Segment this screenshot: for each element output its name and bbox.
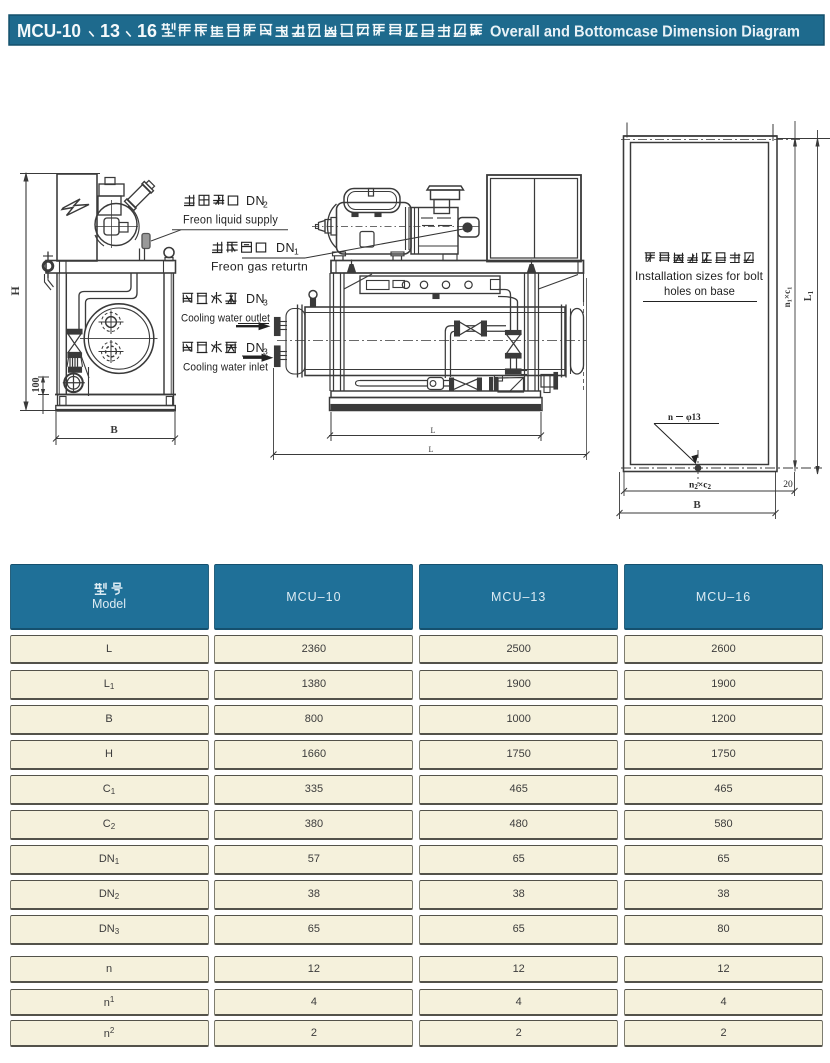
svg-text:Cooling water inlet: Cooling water inlet [183, 362, 268, 374]
svg-text:3: 3 [263, 298, 268, 308]
svg-text:Installation sizes for bolt: Installation sizes for bolt [635, 269, 764, 283]
svg-text:H: H [8, 286, 22, 296]
svg-text:MCU-10: MCU-10 [17, 21, 81, 41]
svg-text:n1×c1: n1×c1 [782, 287, 794, 308]
svg-text:100: 100 [31, 378, 42, 393]
svg-text:Freon gas returtn: Freon gas returtn [211, 262, 308, 274]
svg-text:φ13: φ13 [686, 412, 701, 422]
svg-text:L1: L1 [803, 290, 815, 301]
svg-text:n: n [668, 412, 673, 422]
svg-text:DN: DN [276, 241, 295, 255]
svg-text:B: B [693, 499, 701, 511]
svg-text:L: L [431, 426, 436, 435]
svg-text:16: 16 [137, 21, 157, 41]
svg-text:B: B [110, 424, 118, 436]
svg-text:n2×c2: n2×c2 [689, 481, 711, 492]
svg-text:Overall and Bottomcase Dimensi: Overall and Bottomcase Dimension Diagram [490, 24, 800, 41]
svg-text:20: 20 [783, 480, 793, 490]
svg-text:2: 2 [263, 200, 268, 210]
svg-text:13: 13 [100, 21, 120, 41]
svg-text:holes on base: holes on base [664, 284, 735, 298]
svg-text:Cooling water outlet: Cooling water outlet [181, 313, 270, 325]
svg-text:L: L [429, 445, 434, 454]
svg-text:Freon liquid supply: Freon liquid supply [183, 215, 278, 227]
svg-text:1: 1 [294, 247, 299, 257]
